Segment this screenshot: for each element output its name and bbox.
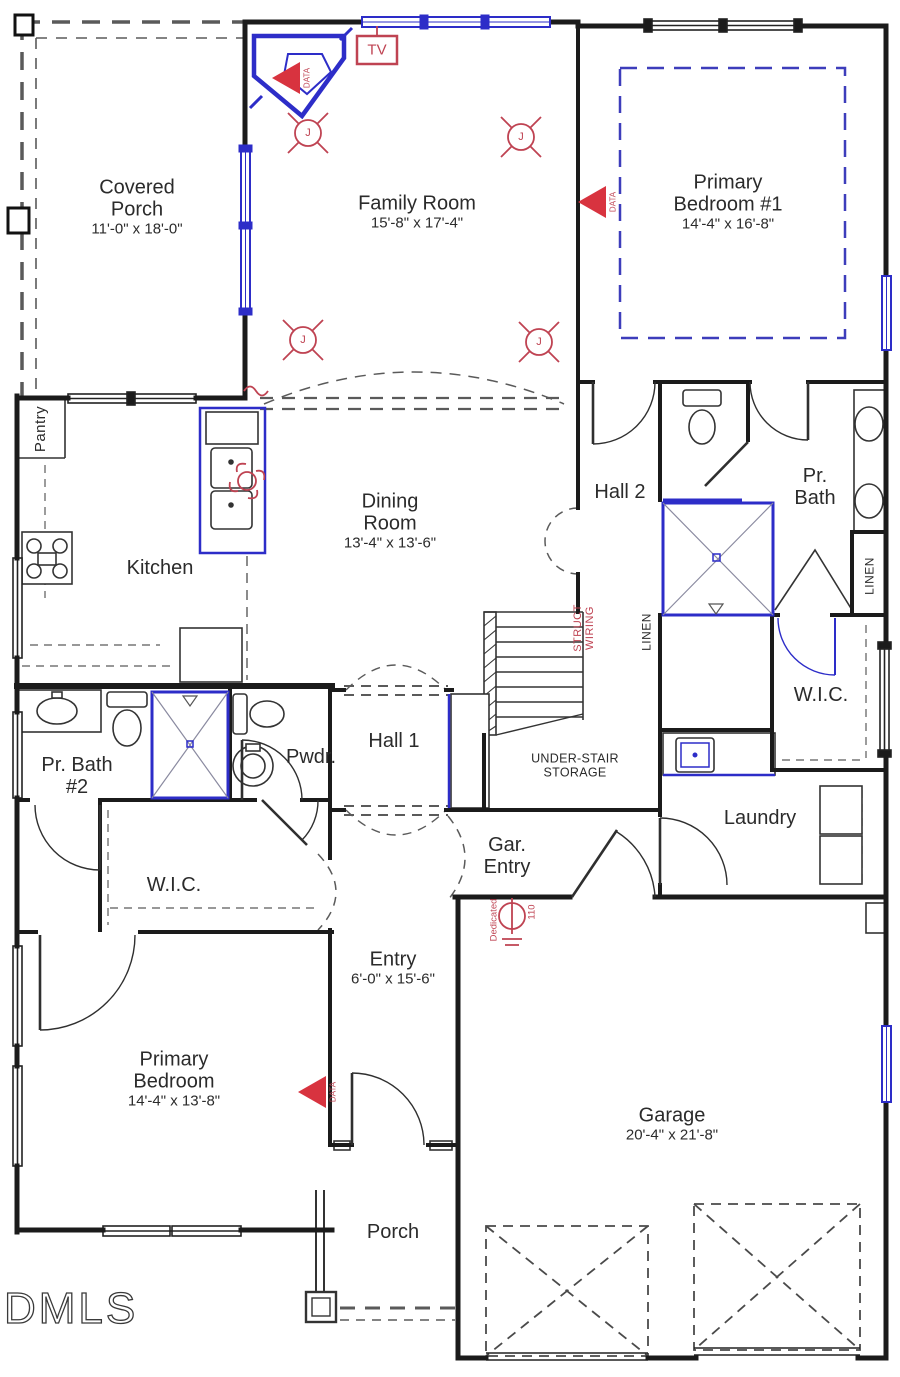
walls (17, 22, 886, 1358)
door-laundry (660, 818, 727, 885)
garage-right-window (882, 1026, 891, 1102)
fireplace (250, 28, 352, 116)
bedroom1-right-window (882, 276, 891, 350)
door-wic-right (778, 618, 835, 675)
bedroom-bottom-windows (103, 1226, 241, 1236)
door-garage-entry (572, 830, 655, 897)
shower-pr-bath (663, 503, 773, 615)
water-heater (866, 903, 886, 933)
pantry-box (17, 400, 65, 458)
door-front (352, 1073, 424, 1145)
kitchen-window (68, 392, 196, 405)
island-sink (206, 412, 258, 529)
dashed-lines (22, 22, 866, 1320)
stove (22, 532, 72, 584)
junction-box-icons (283, 113, 559, 362)
tray-ceiling (620, 68, 845, 338)
door-water-closet (705, 442, 748, 486)
door-primary-bedroom (40, 935, 135, 1030)
door-bedroom1 (593, 382, 655, 444)
laundry-sink (663, 733, 775, 775)
shower-bath2 (152, 692, 228, 798)
switch-icon (244, 387, 268, 396)
electrical-symbols (230, 26, 606, 1108)
tv-outlet-icon (357, 26, 397, 64)
refrigerator (180, 628, 242, 682)
bedroom1-top-windows (644, 19, 802, 32)
floor-plan: Covered Porch 11'-0" x 18'-0" Family Roo… (0, 0, 900, 1377)
toilet-pr-bath (683, 390, 721, 444)
porch-half-wall (316, 1190, 324, 1292)
wic-right-window (878, 642, 891, 757)
floor-plan-drawing (0, 0, 900, 1377)
dedicated-110-outlet-icon (499, 898, 525, 945)
door-pr-bath-2 (35, 805, 100, 870)
data-outlet-icon (272, 62, 606, 1108)
pr-bath-vanity (854, 390, 887, 532)
staircase (484, 612, 583, 735)
family-room-window (362, 15, 550, 29)
washer-dryer (820, 786, 862, 884)
porch-column (306, 1292, 336, 1322)
powder-fixtures (233, 694, 284, 786)
linen-bifold (775, 550, 852, 610)
garage-door-outlines (486, 1204, 860, 1356)
door-pr-bath (750, 382, 808, 440)
door-wic-left (262, 800, 318, 845)
family-room-left-window (239, 145, 252, 315)
bath2-fixtures (17, 690, 147, 746)
